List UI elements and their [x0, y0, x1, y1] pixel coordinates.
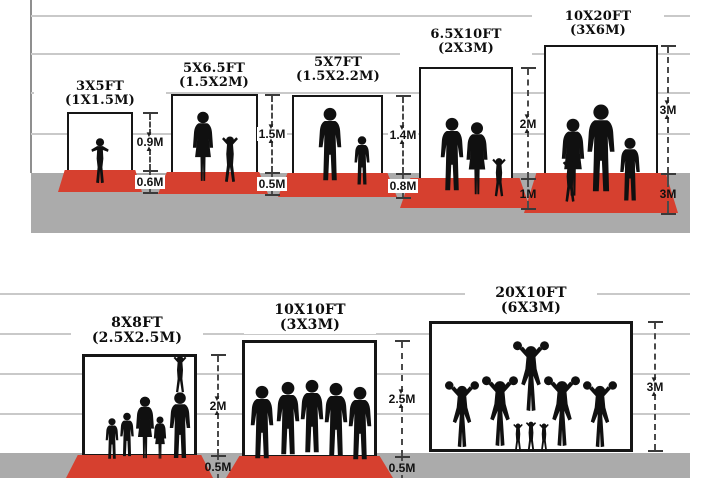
wall-height-dimension: 1.4M — [380, 95, 426, 173]
dimension-cap — [648, 450, 663, 452]
size-ft-label: 8X8FT — [71, 316, 203, 331]
dimension-segment — [527, 201, 529, 208]
panel-title-5x7: 5X7FT (1.5X2.2M) — [272, 56, 404, 85]
dimension-segment — [527, 180, 529, 187]
floor-depth-dimension: 3M — [645, 173, 691, 215]
dimension-arrow-down — [217, 356, 219, 399]
backdrop-frame-10x10 — [242, 340, 377, 458]
backdrop-frame-5x6_5 — [171, 94, 258, 180]
dimension-arrow-down — [271, 96, 273, 127]
size-m-label: (1X1.5M) — [34, 94, 166, 108]
dimension-arrow-up — [667, 117, 669, 173]
dimension-arrow-up — [217, 413, 219, 456]
backdrop-frame-3x5 — [67, 112, 133, 172]
dimension-cap — [521, 208, 536, 210]
floor-depth-value: 3M — [658, 187, 679, 201]
size-ft-label: 5X6.5FT — [148, 62, 280, 76]
backdrop-floor-carpet — [66, 455, 213, 478]
dimension-arrow-down — [149, 114, 151, 135]
wall-height-dimension: 2M — [505, 67, 551, 178]
size-m-label: (2.5X2.5M) — [71, 331, 203, 346]
size-ft-label: 5X7FT — [272, 56, 404, 70]
size-ft-label: 10X10FT — [244, 303, 376, 318]
backdrop-floor-carpet — [226, 456, 393, 478]
floor-depth-dimension: 0.6M — [127, 170, 173, 194]
dimension-arrow-up — [149, 149, 151, 170]
backdrop-frame-6_5x10 — [419, 67, 513, 180]
scene-top-row: 3X5FT (1X1.5M) 0.9M 0.6M 5X6.5FT (1.5X2M… — [0, 0, 720, 270]
floor-depth-dimension: 0.5M — [195, 455, 241, 478]
floor-depth-value: 0.6M — [135, 175, 166, 189]
panel-title-3x5: 3X5FT (1X1.5M) — [34, 80, 166, 109]
wall-height-dimension: 0.9M — [127, 112, 173, 170]
dimension-arrow-down — [654, 323, 656, 380]
dimension-cap — [396, 197, 411, 199]
dimension-arrow-up — [527, 131, 529, 179]
wall-height-dimension: 3M — [645, 45, 691, 173]
floor-depth-value: 0.5M — [203, 460, 234, 474]
size-m-label: (6X3M) — [465, 301, 597, 316]
floor-depth-dimension: 1M — [505, 178, 551, 210]
wall-height-dimension: 3M — [632, 321, 678, 452]
dimension-cap — [143, 192, 158, 194]
dimension-arrow-up — [654, 394, 656, 451]
panel-title-10x20: 10X20FT (3X6M) — [532, 10, 664, 39]
dimension-segment — [402, 175, 404, 179]
panel-title-8x8: 8X8FT (2.5X2.5M) — [71, 316, 203, 347]
size-m-label: (1.5X2M) — [148, 76, 280, 90]
floor-depth-value: 1M — [518, 187, 539, 201]
wall-height-dimension: 2M — [195, 354, 241, 455]
floor-depth-dimension: 0.5M — [379, 456, 425, 478]
dimension-segment — [401, 458, 403, 461]
dimension-segment — [667, 201, 669, 213]
size-m-label: (3X3M) — [244, 318, 376, 333]
size-ft-label: 6.5X10FT — [400, 28, 532, 42]
dimension-segment — [271, 174, 273, 177]
dimension-arrow-up — [401, 406, 403, 456]
panel-title-6_5x10: 6.5X10FT (2X3M) — [400, 28, 532, 57]
dimension-segment — [217, 457, 219, 460]
floor-depth-value: 0.8M — [388, 179, 419, 193]
backdrop-frame-20x10 — [429, 321, 633, 452]
dimension-segment — [149, 172, 151, 175]
floor-depth-value: 0.5M — [387, 461, 418, 475]
size-ft-label: 20X10FT — [465, 286, 597, 301]
dimension-arrow-up — [271, 141, 273, 172]
dimension-segment — [402, 193, 404, 197]
panel-title-5x6_5: 5X6.5FT (1.5X2M) — [148, 62, 280, 91]
dimension-segment — [217, 474, 219, 478]
dimension-arrow-down — [401, 342, 403, 392]
dimension-segment — [271, 191, 273, 194]
size-m-label: (1.5X2.2M) — [272, 70, 404, 84]
size-ft-label: 10X20FT — [532, 10, 664, 24]
panel-title-10x10: 10X10FT (3X3M) — [244, 303, 376, 334]
floor-depth-value: 0.5M — [257, 177, 288, 191]
wall-corner-line — [30, 0, 32, 173]
dimension-arrow-down — [667, 47, 669, 103]
size-m-label: (2X3M) — [400, 42, 532, 56]
dimension-segment — [667, 175, 669, 187]
dimension-arrow-up — [402, 142, 404, 173]
backdrop-frame-8x8 — [82, 354, 197, 457]
size-ft-label: 3X5FT — [34, 80, 166, 94]
size-m-label: (3X6M) — [532, 24, 664, 38]
wall-height-dimension: 1.5M — [249, 94, 295, 172]
backdrop-size-comparison-diagram: 3X5FT (1X1.5M) 0.9M 0.6M 5X6.5FT (1.5X2M… — [0, 0, 720, 478]
panel-title-20x10: 20X10FT (6X3M) — [465, 286, 597, 317]
dimension-arrow-down — [527, 69, 529, 117]
scene-bottom-row: 8X8FT (2.5X2.5M) 2M 0.5M 10X10FT (3X3M) … — [0, 270, 720, 478]
floor-depth-dimension: 0.8M — [380, 173, 426, 199]
wall-height-dimension: 2.5M — [379, 340, 425, 456]
backdrop-frame-10x20 — [544, 45, 658, 175]
backdrop-frame-5x7 — [292, 95, 383, 183]
floor-depth-dimension: 0.5M — [249, 172, 295, 196]
dimension-segment — [149, 189, 151, 192]
dimension-cap — [661, 213, 676, 215]
dimension-arrow-down — [402, 97, 404, 128]
dimension-cap — [265, 194, 280, 196]
